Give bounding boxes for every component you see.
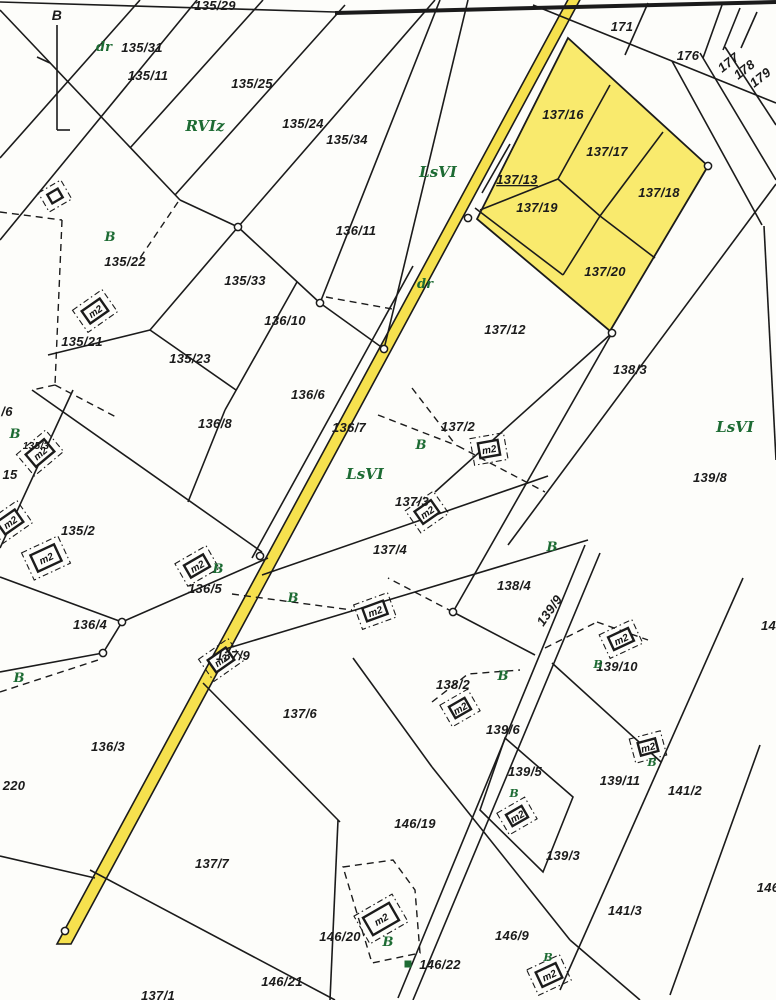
land-use-label: B	[212, 562, 224, 577]
parcel-label: 136/8	[198, 416, 233, 431]
parcel-label: 135/29	[194, 0, 236, 13]
survey-point	[234, 223, 241, 230]
parcel-label: 135/25	[231, 76, 273, 91]
parcel-label: 139/6	[486, 722, 521, 737]
parcel-label: 146/22	[419, 957, 461, 972]
land-use-label: dr	[96, 40, 113, 55]
parcel-label: 135/23	[169, 351, 211, 366]
land-use-label: B	[508, 787, 518, 800]
parcel-label: 137/12	[484, 322, 526, 337]
land-use-label: dr	[417, 277, 434, 292]
parcel-label: 136/6	[291, 387, 326, 402]
survey-point	[704, 162, 711, 169]
survey-point	[316, 299, 323, 306]
parcel-label: 136/10	[264, 313, 306, 328]
parcel-label: 176	[677, 48, 700, 63]
survey-point	[118, 618, 125, 625]
parcel-label: 137/16	[542, 107, 584, 122]
parcel-label: 137/6	[283, 706, 318, 721]
parcel-label: 136/3	[91, 739, 126, 754]
parcel-label: 146/	[757, 880, 776, 895]
parcel-label: 139/8	[693, 470, 728, 485]
land-use-label: LsVI	[715, 418, 755, 436]
cadastral-map-page: m2m2m2m2m2m2m2m2m2m2m2m2m2m2m2135/29B135…	[0, 0, 776, 1000]
land-use-label: B	[415, 438, 427, 453]
parcel-label: 137/19	[516, 200, 558, 215]
cadastral-map: m2m2m2m2m2m2m2m2m2m2m2m2m2m2m2135/29B135…	[0, 0, 776, 1000]
parcel-label: 137/7	[195, 856, 230, 871]
parcel-label: 137/2	[441, 419, 476, 434]
parcel-label: 139/5	[508, 764, 543, 779]
land-use-label: LsVI	[418, 163, 458, 181]
parcel-label: 138/3	[613, 362, 648, 377]
survey-point	[464, 214, 471, 221]
land-use-label: B	[382, 935, 394, 950]
land-use-label: B	[592, 658, 602, 671]
parcel-label: 136/5	[188, 581, 223, 596]
parcel-label: 138/4	[497, 578, 532, 593]
parcel-label: 136/4	[73, 617, 108, 632]
parcel-label: 136/11	[336, 223, 377, 238]
parcel-label: 138/2	[436, 677, 471, 692]
survey-point	[608, 329, 615, 336]
survey-point	[61, 927, 68, 934]
parcel-label: 137/4	[373, 542, 408, 557]
parcel-label: 135/22	[104, 254, 146, 269]
land-use-label: B	[287, 591, 299, 606]
parcel-label: 146/21	[261, 974, 303, 989]
land-use-label: B	[497, 669, 509, 684]
parcel-label: 146/9	[495, 928, 530, 943]
parcel-label: 146/19	[394, 816, 436, 831]
parcel-label: 171	[611, 19, 634, 34]
survey-point	[256, 552, 263, 559]
parcel-label: 135/21	[61, 334, 103, 349]
land-use-label: B	[13, 671, 25, 686]
parcel-label: 137/18	[638, 185, 680, 200]
parcel-label: 137/13	[496, 172, 538, 187]
parcel-label: 136/7	[332, 420, 367, 435]
parcel-label: 137/3	[395, 494, 430, 509]
parcel-label: 141/3	[608, 903, 643, 918]
parcel-label: 135/34	[326, 132, 368, 147]
parcel-label: 135/11	[128, 68, 169, 83]
parcel-label: 135/31	[121, 40, 163, 55]
parcel-label: 141/2	[668, 783, 703, 798]
land-use-label: B	[104, 230, 116, 245]
parcel-label: 137/9	[216, 648, 251, 663]
land-use-label: LsVI	[345, 465, 385, 483]
survey-point	[449, 608, 456, 615]
land-use-label: B	[646, 756, 656, 769]
parcel-label: 146/20	[319, 929, 361, 944]
land-use-label: RVIz	[184, 117, 225, 135]
parcel-label: B	[52, 7, 62, 23]
parcel-label: 137/20	[584, 264, 626, 279]
land-use-label: B	[542, 951, 552, 964]
land-use-label: B	[546, 540, 558, 555]
parcel-label: 139/11	[600, 773, 641, 788]
green-marker-icon	[405, 961, 412, 968]
survey-point	[380, 345, 387, 352]
parcel-label: 135/3	[23, 441, 50, 452]
parcel-label: 220	[2, 778, 26, 793]
parcel-label: /6	[0, 404, 13, 419]
parcel-label: 137/1	[141, 988, 175, 1000]
land-use-label: B	[9, 427, 21, 442]
parcel-label: 141/2	[761, 618, 776, 633]
parcel-label: 135/24	[282, 116, 324, 131]
parcel-label: 135/33	[224, 273, 266, 288]
parcel-label: 139/3	[546, 848, 581, 863]
parcel-label: 135/2	[61, 523, 96, 538]
parcel-label: 15	[2, 467, 18, 482]
parcel-label: 137/17	[586, 144, 628, 159]
survey-point	[99, 649, 106, 656]
